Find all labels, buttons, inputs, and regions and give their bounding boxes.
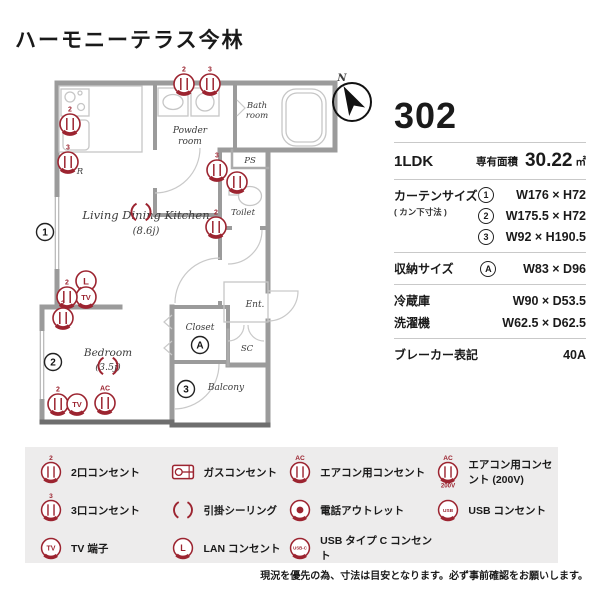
legend-item-outlet-3: 3 3口コンセント	[37, 495, 169, 525]
svg-text:USB: USB	[443, 508, 454, 514]
unit-info-panel: 302 1LDK 専有面積 30.22 ㎡ カーテンサイズ ( カン下寸法 ) …	[394, 98, 586, 368]
legend-item-ceiling: 引掛シーリング	[169, 495, 286, 525]
balcony-label: Balcony	[207, 383, 245, 393]
divider	[394, 179, 586, 180]
legend: 2 2口コンセント 3 3口コンセント TV TV 端子 ガスコンセント 引掛シ…	[25, 447, 558, 563]
legend-item-phone: 電話アウトレット	[286, 495, 434, 525]
mark-3: 3	[183, 385, 189, 396]
tv-outlet-icon: TV	[37, 531, 65, 565]
entrance-label: Ent.	[245, 300, 265, 310]
north-compass: N	[333, 73, 371, 121]
svg-text:L: L	[83, 276, 89, 287]
divider	[394, 284, 586, 285]
outlet-2-icon: 2	[37, 455, 65, 489]
fridge-value: W90 × D53.5	[513, 294, 586, 308]
plan-fixtures	[59, 86, 326, 322]
washer-row: 洗濯機 W62.5 × D62.5	[394, 314, 586, 331]
legend-item-outlet-2: 2 2口コンセント	[37, 457, 169, 487]
breaker-label: ブレーカー表記	[394, 346, 478, 363]
legend-item-lan: L LAN コンセント	[169, 533, 286, 563]
svg-text:USB-C: USB-C	[293, 546, 307, 551]
svg-text:200V: 200V	[441, 483, 456, 489]
ac-outlet-icon: AC	[286, 455, 314, 489]
svg-text:3: 3	[49, 493, 53, 500]
area-row: 1LDK 専有面積 30.22 ㎡	[394, 150, 586, 172]
phone-outlet-icon	[286, 493, 314, 527]
sc-label: SC	[241, 344, 254, 354]
washer-value: W62.5 × D62.5	[502, 316, 586, 330]
usb-outlet-icon: USB	[434, 493, 462, 527]
ac-outlet-icon: AC	[91, 386, 119, 418]
refrigerator-mark: R	[76, 167, 84, 177]
mark-a: A	[196, 341, 203, 352]
svg-text:3: 3	[208, 67, 212, 74]
divider	[394, 338, 586, 339]
ac-200v-outlet-icon: AC200V	[434, 455, 462, 489]
legend-item-gas: ガスコンセント	[169, 457, 286, 487]
curtain-size-1: W176 × H72	[516, 188, 586, 202]
bedroom-label: Bedroom	[83, 347, 132, 359]
curtain-size-2: W175.5 × H72	[506, 209, 586, 223]
area-value: 30.22	[525, 150, 573, 172]
breaker-row: ブレーカー表記 40A	[394, 346, 586, 363]
curtain-size-3: W92 × H190.5	[506, 230, 586, 244]
room-number: 302	[394, 98, 586, 134]
area-label: 専有面積	[476, 154, 518, 169]
layout-type: 1LDK	[394, 153, 433, 170]
svg-text:AC: AC	[295, 455, 305, 462]
curtain-size-block: カーテンサイズ ( カン下寸法 ) 1 W176 × H72 2 W175.5 …	[394, 187, 586, 245]
ps-label: PS	[243, 156, 256, 166]
washer-label: 洗濯機	[394, 314, 430, 331]
mark-2: 2	[50, 358, 56, 369]
svg-text:2: 2	[65, 280, 69, 287]
breaker-value: 40A	[563, 348, 586, 362]
mark-2-badge: 2	[478, 208, 494, 224]
ceiling-light-icon	[169, 493, 197, 527]
mark-3-badge: 3	[478, 229, 494, 245]
divider	[394, 252, 586, 253]
mark-1: 1	[42, 228, 48, 239]
legend-item-tv: TV TV 端子	[37, 533, 169, 563]
north-label: N	[336, 73, 347, 84]
powder-room-label: Powder	[172, 126, 208, 136]
powder-room-label2: room	[178, 137, 202, 147]
lan-outlet-icon: L	[169, 531, 197, 565]
svg-text:2: 2	[182, 67, 186, 74]
svg-text:2: 2	[49, 455, 53, 462]
svg-text:TV: TV	[81, 293, 91, 302]
curtain-row-2: 2 W175.5 × H72	[478, 208, 586, 224]
svg-text:AC: AC	[100, 386, 110, 393]
legend-item-ac-200v: AC200V エアコン用コンセント (200V)	[434, 457, 558, 487]
gas-outlet-icon	[169, 455, 197, 489]
svg-text:AC: AC	[444, 455, 454, 462]
svg-text:2: 2	[61, 301, 65, 308]
bath-room-label: Bath	[246, 101, 267, 111]
bath-room-label2: room	[246, 111, 268, 121]
svg-text:2: 2	[214, 210, 218, 217]
curtain-size-note: ( カン下寸法 )	[394, 206, 478, 218]
svg-text:TV: TV	[46, 545, 55, 553]
svg-text:L: L	[181, 543, 187, 553]
storage-value: W83 × D96	[523, 262, 586, 276]
outlet-3-icon: 3	[37, 493, 65, 527]
legend-item-ac: AC エアコン用コンセント	[286, 457, 434, 487]
usb-c-outlet-icon: USB-C	[286, 531, 314, 565]
mark-1-badge: 1	[478, 187, 494, 203]
disclaimer-text: 現況を優先の為、寸法は目安となります。必ず事前確認をお願いします。	[260, 567, 588, 582]
closet-label: Closet	[186, 323, 215, 333]
legend-item-usb: USB USB コンセント	[434, 495, 558, 525]
divider	[394, 142, 586, 143]
svg-text:3: 3	[66, 145, 70, 152]
tv-outlet-icon: TV	[63, 390, 91, 418]
svg-text:3: 3	[215, 153, 219, 160]
svg-text:TV: TV	[72, 400, 82, 409]
curtain-row-1: 1 W176 × H72	[478, 187, 586, 203]
fridge-row: 冷蔵庫 W90 × D53.5	[394, 292, 586, 309]
mark-a-badge: A	[480, 261, 496, 277]
fridge-label: 冷蔵庫	[394, 292, 430, 309]
legend-item-usbc: USB-C USB タイプ C コンセント	[286, 533, 434, 563]
curtain-row-3: 3 W92 × H190.5	[478, 229, 586, 245]
storage-row: 収納サイズ A W83 × D96	[394, 260, 586, 277]
storage-label: 収納サイズ	[394, 260, 454, 277]
area-unit: ㎡	[576, 154, 587, 169]
svg-text:2: 2	[68, 107, 72, 114]
ldk-size-label: (8.6j)	[133, 226, 160, 237]
toilet-label: Toilet	[231, 208, 256, 218]
curtain-size-label: カーテンサイズ	[394, 187, 478, 204]
svg-text:2: 2	[56, 387, 60, 394]
